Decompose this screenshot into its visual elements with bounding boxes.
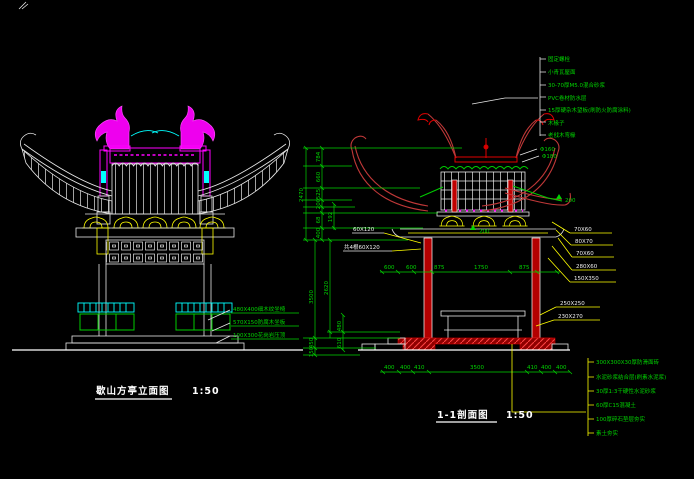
section-brackets (439, 216, 527, 226)
floor-layer-4: 60厚C15混凝土 (596, 401, 636, 409)
ridge-ornaments (95, 106, 215, 151)
dim-450: 450 (309, 337, 315, 348)
roof-layer-6: 木椽子 (548, 119, 565, 127)
dim-hm-875b: 875 (519, 265, 530, 271)
beam-label-2: 共4根60X120 (344, 243, 380, 251)
dim-68: 68 (316, 216, 322, 223)
member-label-3: 70X60 (576, 251, 594, 257)
section-bench (441, 311, 525, 338)
roof-layer-4: PVC卷材防水层 (548, 94, 587, 102)
dim-2470: 2470 (299, 188, 305, 202)
screen-artifact-mark (19, 2, 28, 9)
member-label-1: 70X60 (574, 227, 592, 233)
purlin-label-160: Φ160 (540, 147, 555, 153)
dim-hm-600b: 600 (406, 265, 417, 271)
dim-hm-600a: 600 (384, 265, 395, 271)
queen-post-right (508, 180, 513, 212)
dim-hm-1750: 1750 (474, 265, 488, 271)
whisker-right (152, 131, 179, 136)
dim-660: 660 (316, 171, 322, 182)
roof-layer-2: 小青瓦屋面 (548, 68, 576, 76)
floor-layer-5: 100厚碎石垫层夯实 (596, 415, 645, 423)
dim-hb-1: 400 (384, 365, 395, 371)
purlin-label-180: Φ180 (542, 154, 557, 160)
dim-784: 784 (316, 151, 322, 162)
floor-layer-6: 素土夯实 (596, 429, 619, 437)
dim-hb-6: 400 (541, 365, 552, 371)
member-label-6: 250X250 (560, 301, 585, 307)
dim-vertical-chains: 2470 784 660 525 200 68 400 192 3500 262… (299, 146, 462, 357)
platform (66, 336, 244, 350)
bench-label-3: 100X300花岗岩压顶 (233, 331, 286, 339)
floor-layer-3: 30厚1:3干硬性水泥砂浆 (596, 387, 656, 395)
floor-layer-callouts: 300X300X30厚防滑面砖 水泥砂浆结合层(刷素水泥浆) 30厚1:3干硬性… (512, 344, 666, 437)
dim-480: 480 (337, 320, 343, 331)
ridge-beam (110, 148, 200, 163)
dim-horizontal-bottom: 400 400 410 3500 410 400 400 (380, 365, 572, 374)
elevation-title: 歇山方亭立面图 (95, 385, 170, 397)
whisker-left (131, 131, 158, 136)
section-drawing: 2470 784 660 525 200 68 400 192 3500 262… (299, 55, 666, 437)
dim-hb-5: 410 (527, 365, 538, 371)
section-architrave (392, 229, 564, 237)
dim-hm-875a: 875 (434, 265, 445, 271)
section-floor (358, 338, 570, 350)
dim-hb-2: 400 (400, 365, 411, 371)
dim-3500v: 3500 (309, 290, 315, 304)
dim-525: 525 (316, 188, 322, 199)
dim-2620: 2620 (324, 281, 330, 295)
roof-layer-1: 固定螺栓 (548, 55, 571, 63)
beam-label-1: 60X120 (353, 227, 375, 233)
cad-canvas: 480X400细木纹坐椅 570X150防腐木坐板 100X300花岗岩压顶 歇… (0, 0, 694, 479)
dim-150: 150 (309, 346, 315, 357)
dim-192: 192 (328, 212, 334, 223)
queen-post-left (452, 180, 457, 212)
roof-layer-7: 老戗木弯椽 (548, 131, 576, 139)
beam-labels: 60X120 共4根60X120 (343, 227, 421, 251)
lattice-frieze (106, 240, 204, 264)
purlin-labels: Φ160 Φ180 (520, 147, 557, 162)
cad-viewport: 480X400细木纹坐椅 570X150防腐木坐板 100X300花岗岩压顶 歇… (0, 0, 694, 479)
dim-200v: 200 (316, 198, 322, 209)
roof-center-tiles (112, 163, 198, 214)
member-label-7: 230X270 (558, 314, 583, 320)
section-title: 1-1剖面图 (437, 409, 489, 421)
section-ridge (418, 114, 554, 169)
dim-hb-4: 3500 (470, 365, 484, 371)
dim-hb-7: 400 (556, 365, 567, 371)
elevation-drawing: 480X400细木纹坐椅 570X150防腐木坐板 100X300花岗岩压顶 歇… (12, 106, 303, 399)
section-roof-frame (437, 172, 529, 216)
eave-brackets (82, 217, 226, 228)
member-labels: 70X60 80X70 70X60 280X60 150X350 250X250… (536, 222, 616, 326)
member-label-4: 280X60 (576, 264, 598, 270)
roof-layer-3: 30-70厚M5.0混合砂浆 (548, 81, 605, 89)
elevation-scale: 1:50 (192, 386, 220, 397)
floor-layer-2: 水泥砂浆结合层(刷素水泥浆) (596, 373, 666, 381)
floor-layer-1: 300X300X30厚防滑面砖 (596, 358, 660, 366)
dim-400v: 400 (316, 227, 322, 238)
up-arrow-right (556, 194, 562, 199)
bench-label-1: 480X400细木纹坐椅 (233, 305, 286, 313)
dim-610: 610 (337, 337, 343, 348)
dim-hb-3: 410 (414, 365, 425, 371)
arrow-label-mid: 200 (479, 229, 490, 235)
roof-layer-5: 15厚硬杂木望板(刷防火防腐涂料) (548, 106, 631, 114)
section-column-right (532, 238, 540, 338)
section-column-left (424, 238, 432, 338)
section-scale: 1:50 (506, 410, 534, 421)
member-label-2: 80X70 (575, 239, 593, 245)
arrow-label-right: 200 (565, 198, 576, 204)
ridge-tile-row (440, 167, 528, 170)
bench-label-2: 570X150防腐木坐板 (233, 318, 286, 326)
member-label-5: 150X350 (574, 276, 599, 282)
roof-layer-callouts: 固定螺栓 小青瓦屋面 30-70厚M5.0混合砂浆 PVC卷材防水层 15厚硬杂… (472, 55, 631, 139)
